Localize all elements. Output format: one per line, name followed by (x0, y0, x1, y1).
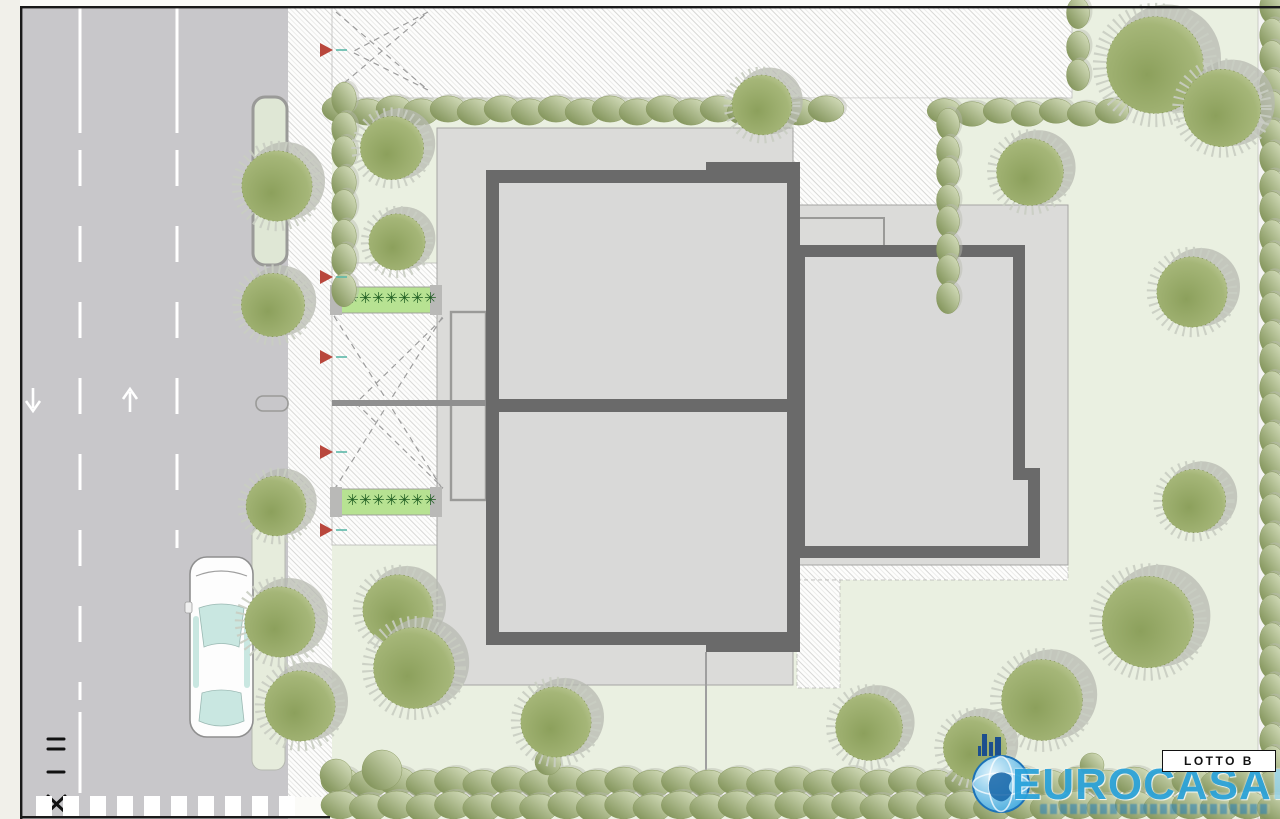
tree-canopy (1183, 69, 1260, 146)
car-windshield (199, 604, 244, 647)
shrub (1080, 753, 1104, 777)
plant-glyph: ✳ (385, 491, 398, 509)
tree-canopy (1157, 257, 1227, 327)
tree-canopy (360, 116, 423, 179)
left-margin (0, 0, 20, 819)
plant-glyph: ✳ (398, 289, 411, 307)
hedge-bump (1067, 59, 1090, 90)
lotto-badge: LOTTO B (1162, 750, 1276, 772)
tree-canopy (245, 587, 315, 657)
hedge-bump (332, 273, 357, 307)
site-plan: ✳✳✳✳✳✳✳✳✳✳✳✳✳✳ (0, 0, 1280, 819)
crosswalk-stripe (252, 796, 268, 818)
frame-left (20, 6, 22, 819)
crosswalk-stripe (279, 796, 295, 818)
crosswalk-stripe (171, 796, 187, 818)
plant-glyph: ✳ (372, 491, 385, 509)
hedges-front (321, 765, 1280, 819)
plant-glyph: ✳ (346, 491, 359, 509)
frame-bottom (20, 816, 330, 818)
tree-canopy (242, 151, 312, 221)
crosswalk-stripe (90, 796, 106, 818)
island-capsule (256, 396, 288, 411)
lotto-badge-label: LOTTO B (1184, 754, 1254, 768)
paving-top-band (332, 7, 1072, 98)
crosswalk-stripe (36, 796, 52, 818)
plant-glyph: ✳ (372, 289, 385, 307)
plant-glyph: ✳ (359, 491, 372, 509)
tree-canopy (997, 139, 1064, 206)
car-mirror-left (185, 602, 192, 613)
tree-canopy (521, 687, 591, 757)
tree-canopy (1102, 576, 1194, 668)
tree-canopy (241, 273, 304, 336)
tree-canopy (732, 75, 792, 135)
crosswalk-stripe (117, 796, 133, 818)
building-main-unit-a (499, 183, 787, 399)
paving-walkway-east (797, 580, 840, 688)
car-rear-window (199, 690, 244, 726)
tree-canopy (374, 628, 455, 709)
tree-canopy (246, 476, 306, 536)
tree-canopy (1162, 469, 1225, 532)
hedge-bump (1067, 0, 1090, 29)
hedge-bump (937, 282, 960, 313)
shrub (362, 750, 402, 790)
crosswalk-stripe (63, 796, 79, 818)
crosswalk-stripe (225, 796, 241, 818)
gate-pillar (330, 487, 342, 517)
hedge-bump (808, 96, 844, 122)
paving-walkway-south (798, 564, 1068, 580)
crosswalk-stripe (144, 796, 160, 818)
plant-glyph: ✳ (359, 289, 372, 307)
building-east-interior (805, 257, 1028, 546)
frame-top (20, 6, 1280, 8)
shrub (320, 759, 352, 791)
plant-glyph: ✳ (411, 491, 424, 509)
car-side-glass-left (193, 616, 199, 688)
tree-canopy (369, 214, 425, 270)
crosswalk-stripe (198, 796, 214, 818)
tree-canopy (836, 694, 903, 761)
plant-glyph: ✳ (424, 491, 437, 509)
plant-glyph: ✳ (411, 289, 424, 307)
plant-glyph: ✳ (398, 491, 411, 509)
plant-glyph: ✳ (424, 289, 437, 307)
building-main-unit-b (499, 412, 787, 632)
tree-canopy (265, 671, 335, 741)
tree-canopy (1002, 660, 1083, 741)
plant-glyph: ✳ (385, 289, 398, 307)
